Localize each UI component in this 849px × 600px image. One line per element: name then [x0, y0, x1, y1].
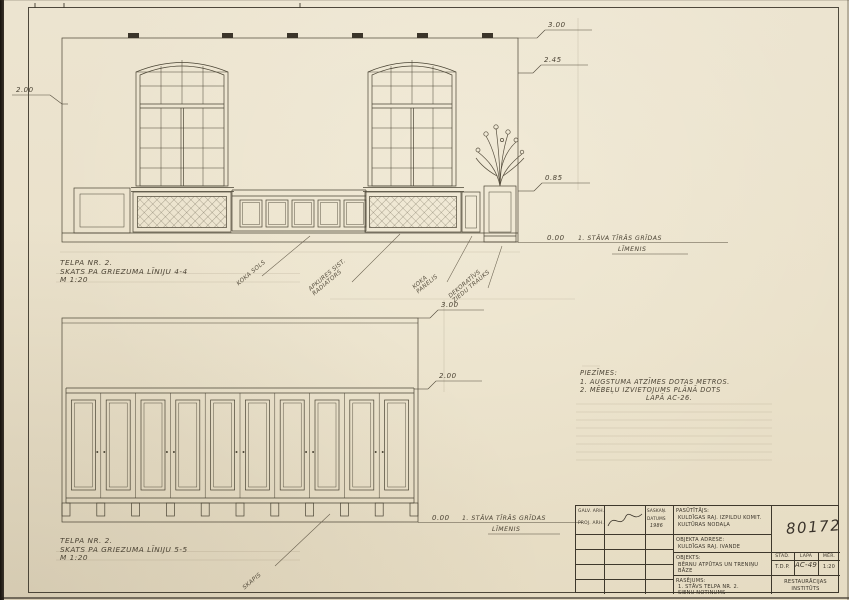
- floor-level-label: 1. STĀVA TĪRĀS GRĪDAS: [578, 235, 662, 242]
- tb-v-scale: 1:20: [818, 564, 840, 570]
- floor-level-label-b2: LĪMENIS: [492, 526, 520, 533]
- tb-client-label: PASŪTĪTĀJS:: [676, 508, 709, 514]
- tb-approve-label: SASKAŅ.: [647, 508, 667, 514]
- arched-window-1: [131, 60, 234, 192]
- decorative-plant: [476, 125, 524, 186]
- level-mark-0-00: 0.00: [547, 234, 565, 242]
- tb-org-2: INSTITŪTS: [771, 586, 840, 592]
- elevation-5-5: [62, 318, 418, 522]
- tb-date-label: DATUMS: [647, 516, 666, 522]
- tb-role-2: PROJ. ARH.: [578, 521, 604, 527]
- level-mark-b-3-00: 3.00: [441, 301, 459, 309]
- tb-object-2: BĀZE: [678, 568, 693, 574]
- tb-object-label: OBJEKTS:: [676, 555, 701, 561]
- drawing-sheet: TELPA NR. 2. SKATS PA GRIEZUMA LĪNIJU 4-…: [0, 0, 849, 600]
- tb-grid-line: [576, 534, 673, 535]
- tb-h-sheet: LAPA: [794, 554, 818, 560]
- tb-object-1: BĒRNU ATPŪTAS UN TRENIŅU: [678, 562, 758, 568]
- tb-v-stage: T.D.P.: [771, 564, 794, 570]
- level-mark-3-00: 3.00: [548, 21, 566, 29]
- tb-address-label: OBJEKTA ADRESE:: [676, 537, 724, 543]
- tb-grid-line: [604, 506, 605, 594]
- floor-level-label-b: 1. STĀVA TĪRĀS GRĪDAS: [462, 515, 546, 522]
- tb-drawing-label: RASĒJUMS:: [676, 578, 706, 584]
- tb-org-1: RESTAURĀCIJAS: [771, 579, 840, 585]
- tb-grid-line: [576, 579, 673, 580]
- tb-v-sheet: AC-49: [794, 562, 818, 568]
- tb-grid-line: [576, 564, 673, 565]
- wood-bench-panels: [232, 190, 366, 231]
- notes-line-1: 1. AUGSTUMA ATZĪMES DOTAS METROS.: [580, 378, 730, 386]
- ceiling-beam-marks: [128, 33, 493, 38]
- tb-grid-line: [673, 575, 840, 576]
- tb-address-1: KULDĪGAS RAJ. IVANDE: [678, 544, 740, 550]
- notes-line-3: LAPĀ AC-26.: [646, 394, 692, 402]
- tb-drawing-2: SIENU NOTINUMS: [678, 590, 726, 596]
- arched-window-2: [363, 60, 464, 192]
- top-view-title-scale: M 1:20: [60, 275, 88, 284]
- tb-grid-line: [673, 506, 674, 594]
- document-number: 80172: [785, 516, 841, 538]
- radiator-grille-1: [133, 192, 231, 232]
- level-mark-0-85: 0.85: [545, 174, 563, 182]
- tb-client-1: KULDĪGAS RAJ. IZPILDU KOMIT.: [678, 515, 761, 521]
- title-block: GALV. ARH. PROJ. ARH. SASKAŅ. DATUMS 198…: [575, 505, 839, 593]
- radiator-grille-2: [365, 192, 461, 232]
- elevation-4-4: [62, 33, 524, 242]
- level-mark-b-2-00: 2.00: [439, 372, 457, 380]
- tb-grid-line: [673, 534, 771, 535]
- elevation-5-5-dimensions: [275, 310, 583, 566]
- tb-h-scale: MĒR.: [818, 554, 840, 560]
- bottom-view-title-scale: M 1:20: [60, 553, 88, 562]
- level-mark-2-45: 2.45: [544, 56, 562, 64]
- notes-heading: PIEZĪMES:: [580, 369, 617, 377]
- notes-line-2: 2. MĒBEĻU IZVIETOJUMS PLĀNĀ DOTS: [580, 386, 721, 394]
- signature: [606, 508, 644, 532]
- wood-panel-left: [74, 188, 130, 233]
- tb-grid-line: [576, 549, 673, 550]
- tb-year: 1986: [650, 524, 663, 530]
- wood-panel-right: [462, 192, 480, 232]
- tb-grid-line: [645, 506, 646, 594]
- tb-h-stage: STAD.: [771, 554, 794, 560]
- floor-level-label-2: LĪMENIS: [618, 246, 646, 253]
- level-mark-2-00: 2.00: [16, 86, 34, 94]
- flower-pedestal: [484, 186, 516, 242]
- tb-role-1: GALV. ARH.: [578, 509, 604, 515]
- wardrobe: [62, 388, 418, 516]
- tb-client-2: KULTŪRAS NODAĻA: [678, 522, 730, 528]
- level-mark-b-0-00: 0.00: [432, 514, 450, 522]
- wardrobe-feet: [62, 503, 418, 516]
